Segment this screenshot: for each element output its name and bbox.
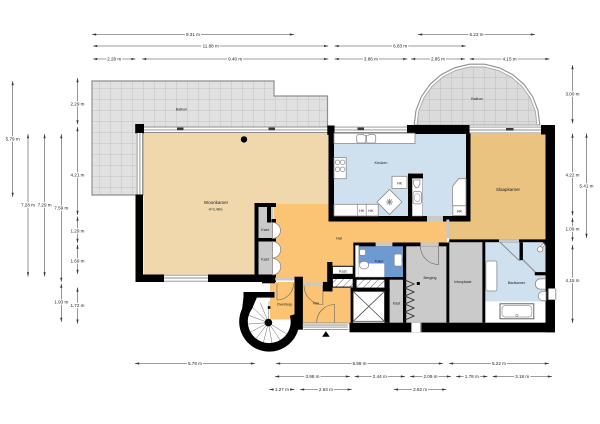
svg-text:2.29 m: 2.29 m [70,102,84,107]
svg-text:Badkamer: Badkamer [508,281,526,285]
svg-text:2.44 m: 2.44 m [373,374,387,379]
svg-text:Toilet: Toilet [375,260,385,264]
svg-text:4.21 m: 4.21 m [70,173,84,178]
svg-text:HK: HK [397,181,403,185]
svg-text:1.93 m: 1.93 m [54,300,68,305]
svg-text:5.23 m: 5.23 m [469,32,483,37]
svg-text:Balkon: Balkon [471,97,483,101]
svg-text:7.29 m: 7.29 m [38,203,52,208]
svg-text:7.28 m: 7.28 m [21,203,35,208]
svg-text:Kast: Kast [261,228,270,232]
svg-text:1.27 m: 1.27 m [275,387,289,392]
svg-text:1.69 m: 1.69 m [70,259,84,264]
svg-text:H=2,46m: H=2,46m [209,208,223,212]
svg-text:3.98 m: 3.98 m [305,374,319,379]
svg-text:8.98 m: 8.98 m [352,361,366,366]
svg-text:2.85 m: 2.85 m [431,57,445,62]
svg-text:HK: HK [457,209,463,213]
svg-text:1.72 m: 1.72 m [70,303,84,308]
svg-text:5.41 m: 5.41 m [579,184,593,189]
svg-text:9.40 m: 9.40 m [228,57,242,62]
svg-text:HK: HK [359,209,365,213]
svg-text:1.09 m: 1.09 m [565,227,579,232]
svg-text:2.09 m: 2.09 m [423,374,437,379]
svg-text:Hal: Hal [313,302,319,306]
svg-text:3.86 m: 3.86 m [364,57,378,62]
svg-text:Inloopkast: Inloopkast [454,280,472,284]
svg-text:2.92 m: 2.92 m [413,387,427,392]
svg-text:6.83 m: 6.83 m [393,44,407,49]
svg-text:Berging: Berging [423,276,436,280]
svg-text:11.88 m: 11.88 m [203,44,219,49]
svg-text:Keuken: Keuken [375,161,388,165]
svg-text:Kast: Kast [261,257,270,261]
svg-text:7.59 m: 7.59 m [54,206,68,211]
svg-text:Slaapkamer: Slaapkamer [496,187,521,192]
svg-text:4.22 m: 4.22 m [565,173,579,178]
svg-text:5.22 m: 5.22 m [492,361,506,366]
svg-text:1.29 m: 1.29 m [70,229,84,234]
svg-text:HK: HK [368,209,374,213]
svg-text:2.63 m: 2.63 m [319,387,333,392]
svg-text:2.28 m: 2.28 m [107,57,121,62]
svg-text:9.31 m: 9.31 m [186,32,200,37]
svg-text:1.78 m: 1.78 m [465,374,479,379]
svg-text:Balkon: Balkon [176,108,188,112]
svg-text:Hal: Hal [336,237,342,241]
svg-text:4.15 m: 4.15 m [565,278,579,283]
svg-text:3.00 m: 3.00 m [565,92,579,97]
svg-text:Kast: Kast [339,270,348,274]
svg-text:4.15 m: 4.15 m [503,57,517,62]
svg-text:Woonkamer: Woonkamer [204,200,229,205]
svg-text:5.79 m: 5.79 m [6,137,20,142]
svg-text:Kast: Kast [393,302,402,306]
svg-text:Overloop: Overloop [277,303,292,307]
svg-text:5.78 m: 5.78 m [188,361,202,366]
svg-text:3.18 m: 3.18 m [515,374,529,379]
